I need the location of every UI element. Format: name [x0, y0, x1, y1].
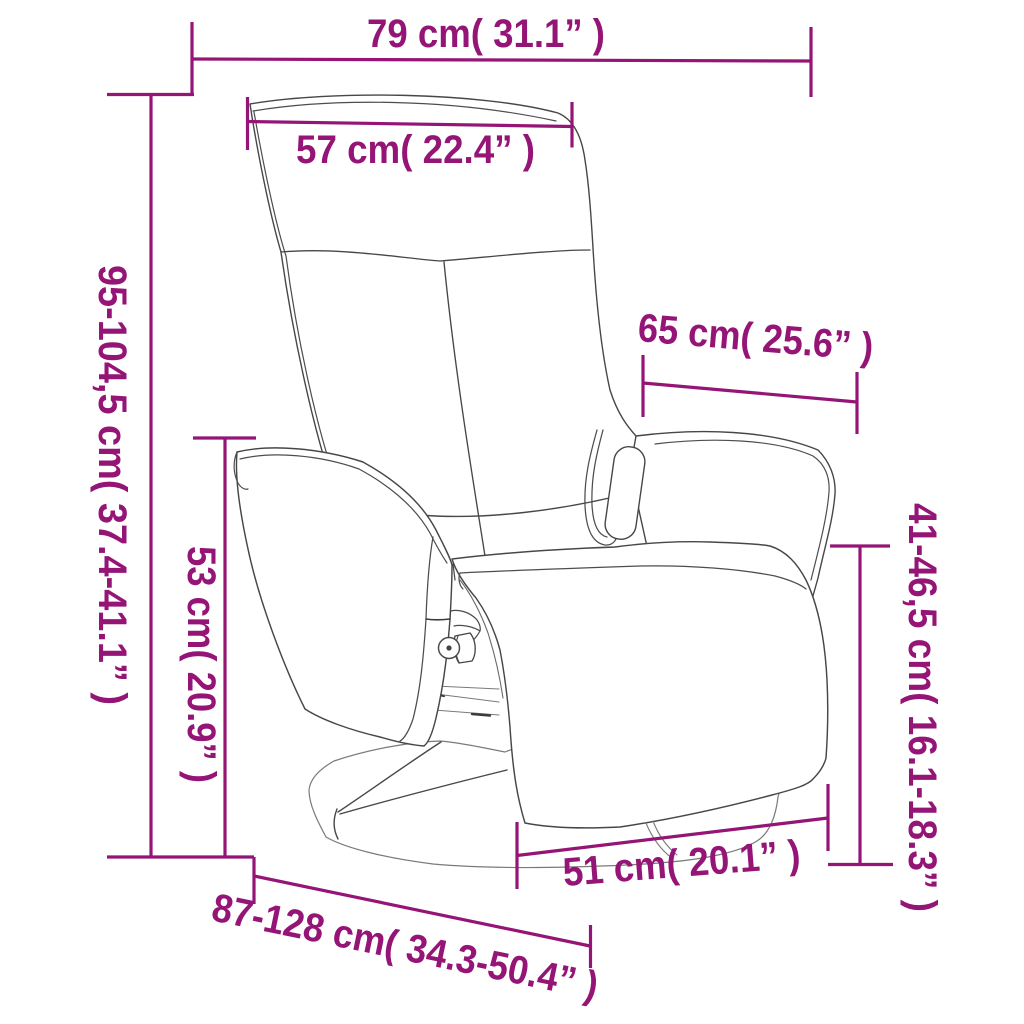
svg-text:57 cm( 22.4” ): 57 cm( 22.4” )	[296, 128, 535, 172]
svg-text:95-104,5 cm( 37.4-41.1” ): 95-104,5 cm( 37.4-41.1” )	[90, 265, 134, 705]
svg-text:53 cm( 20.9” ): 53 cm( 20.9” )	[179, 546, 223, 783]
svg-text:41-46,5 cm( 16.1-18.3” ): 41-46,5 cm( 16.1-18.3” )	[900, 503, 944, 912]
svg-text:79 cm( 31.1” ): 79 cm( 31.1” )	[367, 12, 605, 56]
